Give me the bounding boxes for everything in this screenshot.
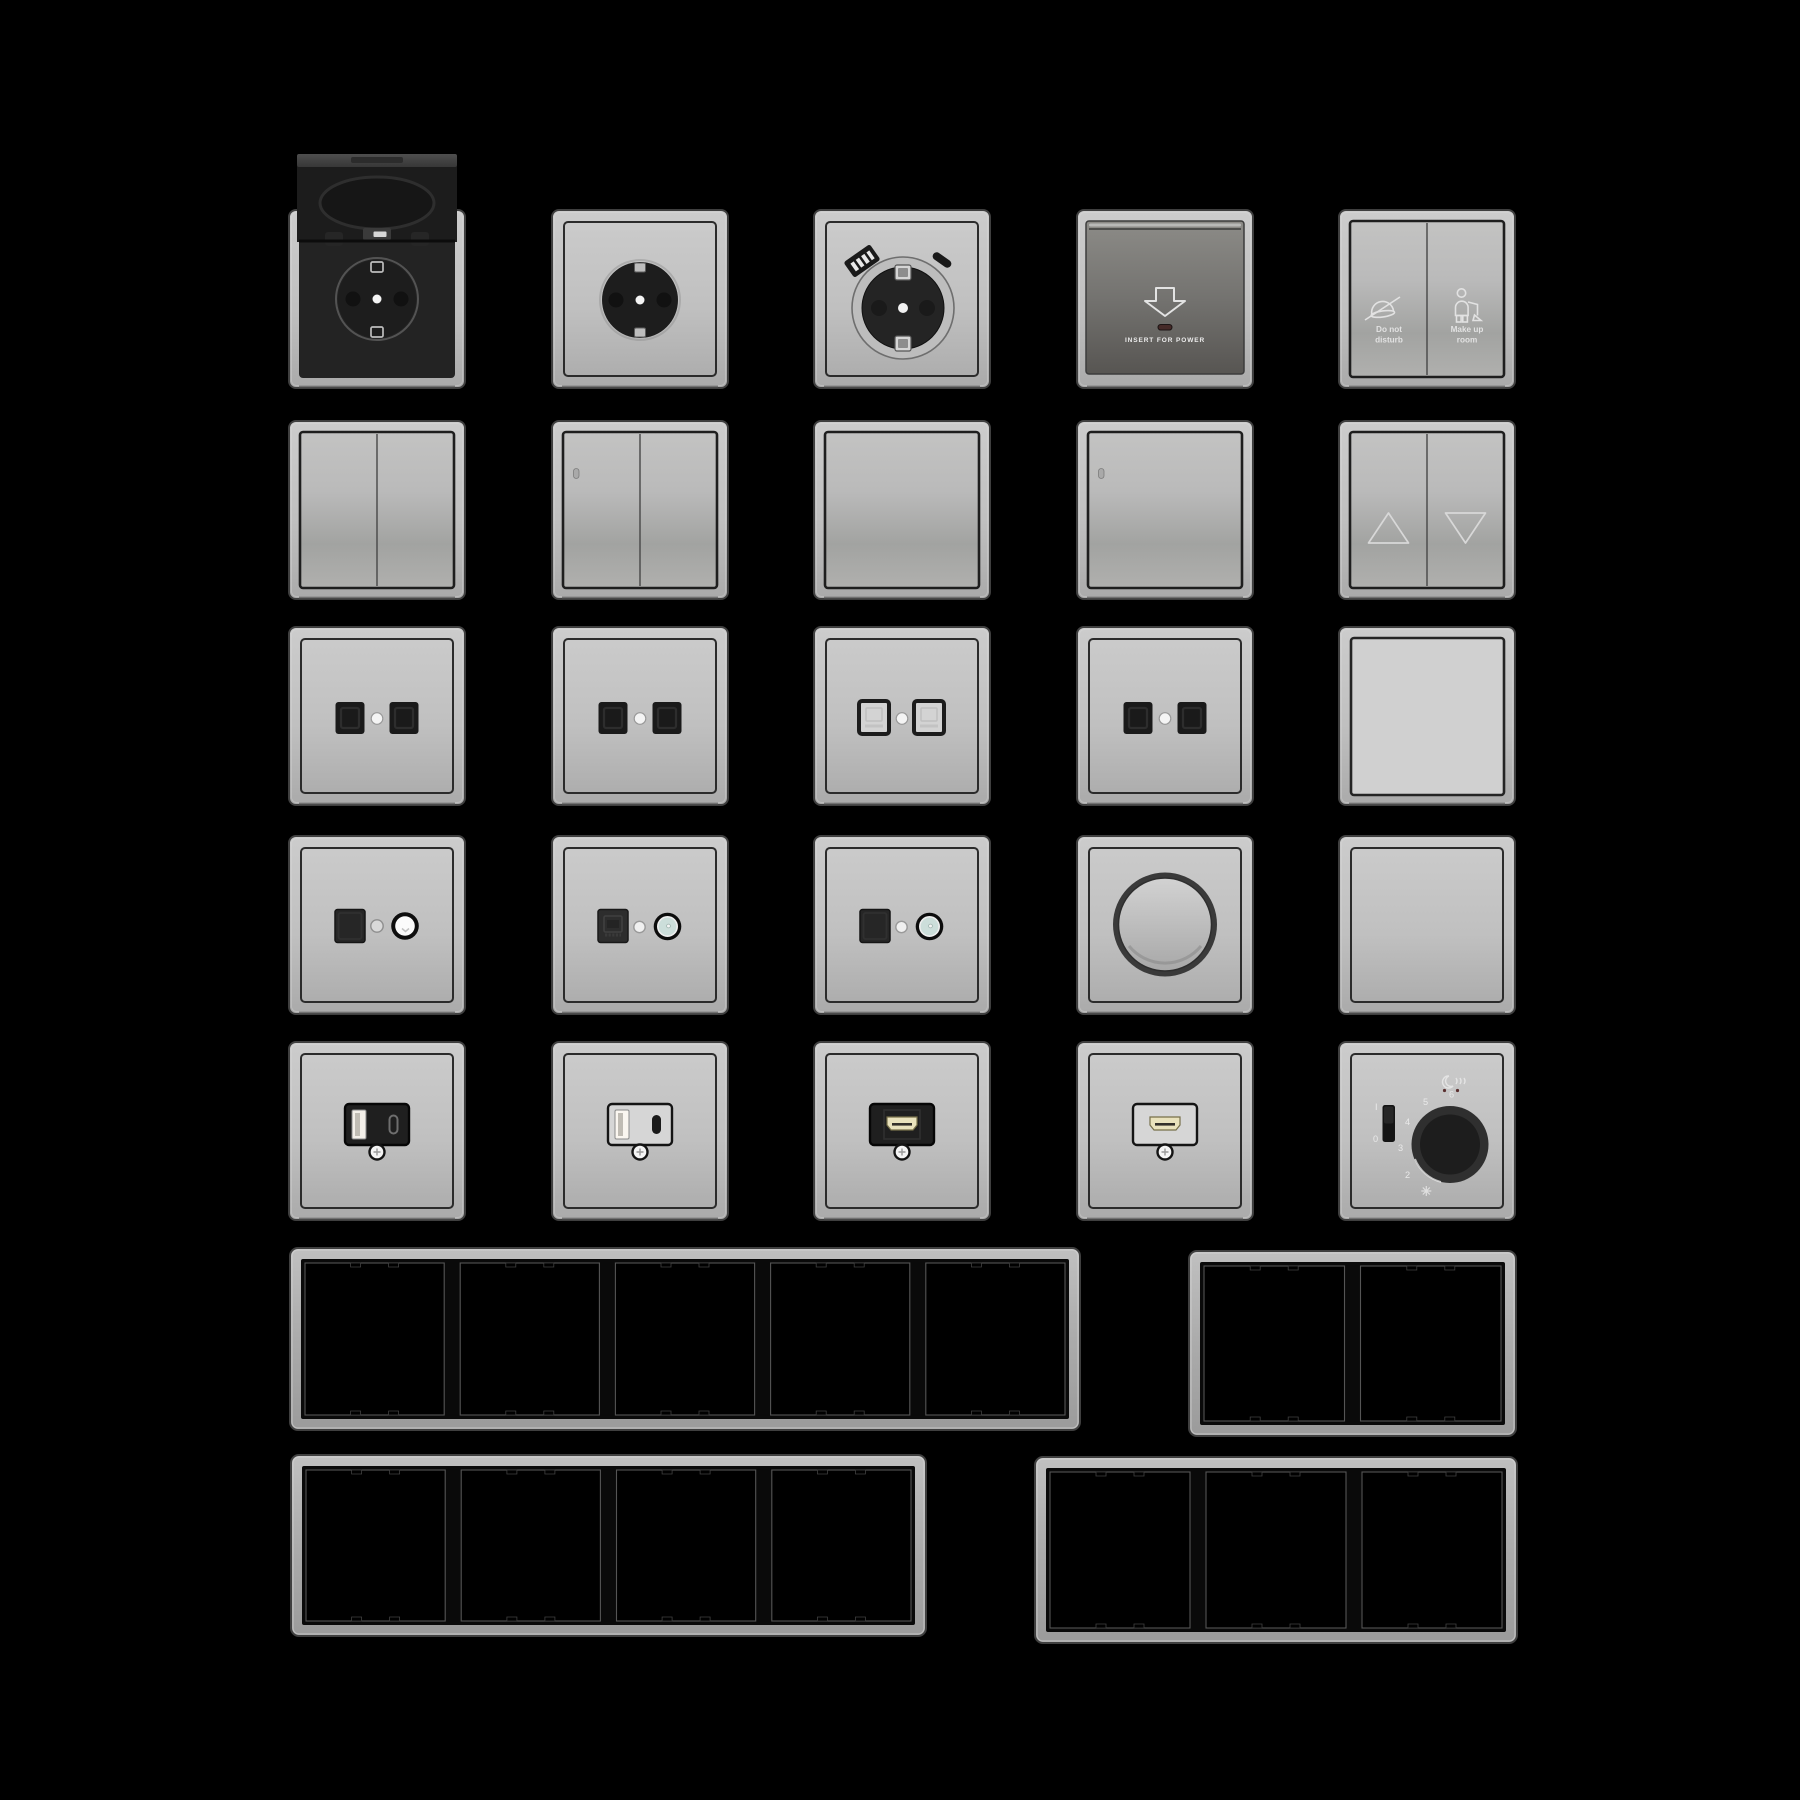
svg-text:INSERT FOR POWER: INSERT FOR POWER [1125, 337, 1205, 344]
svg-text:3: 3 [1398, 1143, 1403, 1153]
svg-text:0: 0 [1373, 1134, 1378, 1144]
svg-text:Do not: Do not [1376, 325, 1402, 334]
svg-text:2: 2 [1405, 1170, 1410, 1180]
svg-text:I: I [1375, 1102, 1378, 1112]
svg-text:6: 6 [1449, 1090, 1454, 1100]
svg-text:room: room [1457, 336, 1477, 345]
svg-text:5: 5 [1423, 1097, 1428, 1107]
svg-text:disturb: disturb [1375, 336, 1403, 345]
svg-text:Make up: Make up [1451, 325, 1484, 334]
svg-text:4: 4 [1405, 1117, 1410, 1127]
